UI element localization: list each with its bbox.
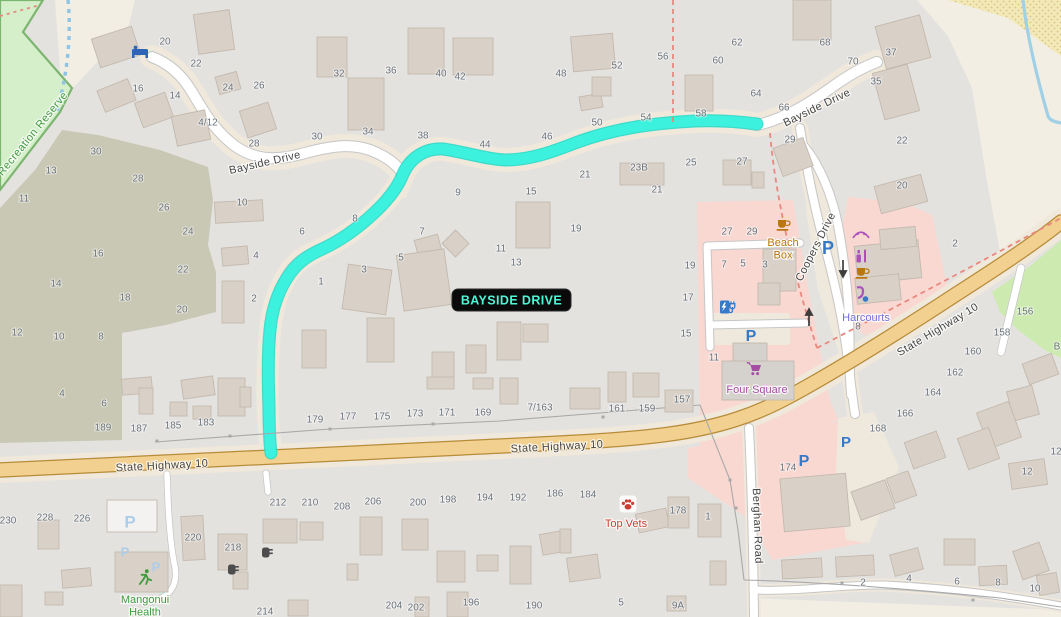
housenumber: 5 xyxy=(398,253,404,264)
housenumber: 179 xyxy=(307,415,324,426)
housenumber: 4 xyxy=(253,251,259,262)
housenumber: 230 xyxy=(0,516,17,527)
housenumber: 175 xyxy=(374,412,391,423)
housenumber: 11 xyxy=(19,194,30,205)
building xyxy=(396,249,451,311)
svg-text:P: P xyxy=(799,453,810,470)
housenumber: 25 xyxy=(685,158,697,169)
svg-text:P: P xyxy=(152,559,161,574)
cafe-icon xyxy=(777,220,791,231)
housenumber: 66 xyxy=(778,103,790,114)
building xyxy=(466,345,486,373)
building xyxy=(427,377,454,389)
building xyxy=(453,38,493,75)
housenumber: 206 xyxy=(365,497,382,508)
building xyxy=(944,539,975,565)
housenumber: 27 xyxy=(736,157,748,168)
housenumber: 9 xyxy=(455,188,461,199)
building xyxy=(300,522,323,540)
housenumber: 12 xyxy=(1021,467,1033,478)
building xyxy=(45,592,63,605)
housenumber: 28 xyxy=(248,139,260,150)
housenumber: 6 xyxy=(954,577,960,588)
building xyxy=(560,529,571,553)
building xyxy=(473,378,493,389)
building xyxy=(782,558,823,579)
svg-text:P: P xyxy=(124,512,135,531)
building xyxy=(170,402,187,416)
housenumber: 200 xyxy=(410,498,427,509)
housenumber: 10 xyxy=(236,198,248,209)
building xyxy=(566,554,600,582)
housenumber: 16 xyxy=(132,84,144,95)
housenumber: 192 xyxy=(510,493,527,504)
housenumber: 2 xyxy=(952,239,958,250)
building xyxy=(437,551,465,582)
map-canvas[interactable]: PPPPPPP Bayside DriveBayside DriveCooper… xyxy=(0,0,1061,617)
housenumber: 23B xyxy=(630,163,648,174)
building xyxy=(240,387,251,407)
four-square-label: Four Square xyxy=(726,384,787,396)
building xyxy=(733,343,767,363)
housenumber: 26 xyxy=(253,81,265,92)
cafe-icon xyxy=(856,268,870,279)
building xyxy=(408,28,444,74)
housenumber: 24 xyxy=(222,83,234,94)
building xyxy=(500,378,518,404)
housenumber: 5 xyxy=(740,259,746,270)
housenumber: 11 xyxy=(496,244,507,255)
housenumber: 198 xyxy=(440,495,457,506)
housenumber: 158 xyxy=(994,328,1011,339)
housenumber: 8 xyxy=(995,578,1001,589)
building xyxy=(193,10,234,55)
housenumber: 8 xyxy=(352,214,358,225)
housenumber: 1 xyxy=(318,277,324,288)
parking-icon: P xyxy=(841,434,851,451)
building xyxy=(570,388,600,409)
building xyxy=(402,519,428,550)
building xyxy=(0,585,22,617)
housenumber: 169 xyxy=(475,408,492,419)
building xyxy=(348,78,384,130)
housenumber: 10 xyxy=(1029,584,1041,595)
housenumber: 7 xyxy=(721,260,727,271)
building xyxy=(432,352,454,378)
housenumber: 7 xyxy=(419,227,425,238)
route-highlight-label: BAYSIDE DRIVE xyxy=(452,289,571,311)
housenumber: 16 xyxy=(92,249,104,260)
housenumber: 11 xyxy=(709,353,720,364)
housenumber: 30 xyxy=(311,132,323,143)
housenumber: 35 xyxy=(870,77,882,88)
housenumber: 20 xyxy=(159,37,171,48)
housenumber: 30 xyxy=(90,147,102,158)
housenumber: 48 xyxy=(555,69,567,80)
housenumber: 228 xyxy=(37,513,54,524)
housenumber: 40 xyxy=(435,69,447,80)
housenumber: 14 xyxy=(50,279,62,290)
building xyxy=(685,75,713,111)
housenumber: 58 xyxy=(695,109,707,120)
building xyxy=(752,172,764,188)
housenumber: 177 xyxy=(340,412,357,423)
map-svg: PPPPPPP Bayside DriveBayside DriveCooper… xyxy=(0,0,1061,617)
building xyxy=(979,565,1008,585)
building xyxy=(302,330,326,368)
housenumber: 50 xyxy=(591,118,603,129)
building xyxy=(497,322,521,360)
housenumber: 12 xyxy=(1050,447,1061,458)
housenumber: 22 xyxy=(190,59,202,70)
building xyxy=(836,555,875,577)
building xyxy=(342,264,392,315)
housenumber: 20 xyxy=(176,305,188,316)
building xyxy=(139,388,153,414)
housenumber: 19 xyxy=(570,224,582,235)
building xyxy=(181,376,215,399)
building xyxy=(780,473,850,532)
svg-text:P: P xyxy=(841,434,851,451)
beach-box-label: Beach xyxy=(767,237,798,249)
housenumber: 52 xyxy=(611,61,623,72)
building xyxy=(592,77,611,96)
housenumber: 183 xyxy=(198,418,215,429)
building xyxy=(367,318,394,362)
mangonui-health-label: Mangonui xyxy=(121,594,169,606)
building xyxy=(758,283,780,305)
housenumber: 14 xyxy=(169,91,181,102)
housenumber: 29 xyxy=(746,227,758,238)
parking-icon: P xyxy=(746,328,757,345)
housenumber: 37 xyxy=(885,48,897,59)
housenumber: 32 xyxy=(333,69,345,80)
housenumber: 9A xyxy=(672,601,685,612)
housenumber: 64 xyxy=(750,89,762,100)
building xyxy=(523,324,548,342)
mangonui-health-label: Health xyxy=(129,606,161,617)
building xyxy=(61,568,91,588)
housenumber: 162 xyxy=(947,368,964,379)
housenumber: 22 xyxy=(177,265,189,276)
housenumber: 21 xyxy=(651,185,663,196)
building xyxy=(477,555,498,571)
housenumber: 10 xyxy=(53,332,65,343)
building xyxy=(221,246,248,266)
housenumber: 26 xyxy=(158,203,170,214)
building xyxy=(360,517,382,555)
housenumber: 4 xyxy=(906,574,912,585)
parking-private-icon: P xyxy=(152,559,161,574)
housenumber: 185 xyxy=(165,421,182,432)
housenumber: 70 xyxy=(847,57,859,68)
housenumber: 54 xyxy=(640,113,652,124)
housenumber: 5 xyxy=(618,598,624,609)
building xyxy=(222,281,244,323)
housenumber: 12 xyxy=(11,328,23,339)
parking-private-icon: P xyxy=(121,544,130,559)
housenumber: 186 xyxy=(547,489,564,500)
route-label-text: BAYSIDE DRIVE xyxy=(461,293,562,307)
housenumber: 204 xyxy=(386,601,403,612)
housenumber: 8 xyxy=(98,332,104,343)
building xyxy=(571,33,616,72)
housenumber: 19 xyxy=(684,261,696,272)
parking-private-icon: P xyxy=(124,512,135,531)
housenumber: 4/12 xyxy=(198,118,218,129)
housenumber: 15 xyxy=(680,329,692,340)
building xyxy=(793,0,831,40)
svg-text:P: P xyxy=(121,544,130,559)
building xyxy=(510,546,531,584)
housenumber: 6 xyxy=(101,399,107,410)
svg-text:P: P xyxy=(746,328,757,345)
housenumber: 208 xyxy=(334,502,351,513)
housenumber: 62 xyxy=(731,38,743,49)
housenumber: 34 xyxy=(362,127,374,138)
housenumber: 190 xyxy=(526,601,543,612)
housenumber: 3 xyxy=(361,265,367,276)
housenumber: 212 xyxy=(270,498,287,509)
housenumber: 168 xyxy=(870,424,887,435)
housenumber: 22 xyxy=(896,136,908,147)
housenumber: 21 xyxy=(579,170,591,181)
housenumber: 20 xyxy=(896,181,908,192)
housenumber: 161 xyxy=(609,404,626,415)
top-vets-label: Top Vets xyxy=(605,518,648,530)
housenumber: 171 xyxy=(439,408,456,419)
housenumber: 220 xyxy=(185,533,202,544)
housenumber: 218 xyxy=(225,543,242,554)
housenumber: 166 xyxy=(897,409,914,420)
paw-icon xyxy=(620,496,637,513)
housenumber: 3 xyxy=(762,260,768,271)
housenumber: 1 xyxy=(705,512,711,523)
housenumber: 29 xyxy=(784,135,796,146)
building xyxy=(516,202,550,248)
housenumber: 160 xyxy=(965,347,982,358)
housenumber: 44 xyxy=(479,140,491,151)
housenumber: 36 xyxy=(385,66,397,77)
building xyxy=(233,572,248,589)
housenumber: 56 xyxy=(657,52,669,63)
housenumber: 174 xyxy=(780,463,797,474)
housenumber: 6 xyxy=(299,227,305,238)
housenumber: 28 xyxy=(132,174,144,185)
housenumber: 194 xyxy=(477,493,494,504)
housenumber: 17 xyxy=(682,293,694,304)
housenumber: 24 xyxy=(182,227,194,238)
housenumber: 226 xyxy=(74,514,91,525)
building xyxy=(710,561,726,585)
housenumber: 214 xyxy=(257,607,274,617)
housenumber: 187 xyxy=(131,424,148,435)
parking-icon: P xyxy=(799,453,810,470)
housenumber: 46 xyxy=(541,132,553,143)
harcourts-label: Harcourts xyxy=(842,312,890,324)
housenumber: 173 xyxy=(407,409,424,420)
housenumber: 18 xyxy=(119,293,131,304)
housenumber: 196 xyxy=(463,598,480,609)
housenumber: 202 xyxy=(408,603,425,614)
housenumber: 210 xyxy=(302,498,319,509)
housenumber: 189 xyxy=(95,423,112,434)
housenumber: 60 xyxy=(712,56,724,67)
housenumber: 178 xyxy=(670,506,687,517)
housenumber: 13 xyxy=(45,166,57,177)
beach-box-label: Box xyxy=(774,249,793,261)
housenumber: 159 xyxy=(639,404,656,415)
housenumber: B xyxy=(1054,342,1061,353)
housenumber: 13 xyxy=(510,258,522,269)
building xyxy=(608,372,626,402)
building xyxy=(879,226,917,249)
housenumber: 15 xyxy=(525,187,537,198)
building xyxy=(633,373,659,397)
housenumber: 2 xyxy=(251,294,257,305)
housenumber: 2 xyxy=(860,578,866,589)
building xyxy=(38,520,59,549)
housenumber: 42 xyxy=(454,72,466,83)
housenumber: 164 xyxy=(925,388,942,399)
housenumber: 184 xyxy=(580,490,597,501)
housenumber: 4 xyxy=(59,389,65,400)
building xyxy=(347,564,358,580)
housenumber: 157 xyxy=(674,395,691,406)
housenumber: 38 xyxy=(417,131,429,142)
housenumber: 27 xyxy=(721,227,733,238)
building xyxy=(263,519,297,543)
building xyxy=(288,600,308,616)
housenumber: 7/163 xyxy=(527,403,552,414)
housenumber: 156 xyxy=(1017,307,1034,318)
housenumber: 8 xyxy=(855,322,861,333)
housenumber: 68 xyxy=(819,38,831,49)
